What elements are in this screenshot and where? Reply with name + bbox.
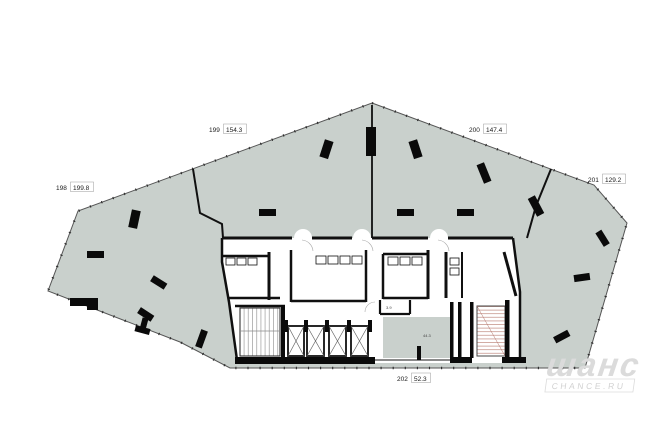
unit-201-area: 129.2 — [605, 177, 622, 184]
unit-label-199: 199 154.3 — [209, 124, 247, 134]
unit-198-area: 199.8 — [73, 185, 90, 192]
stair-wall — [505, 300, 510, 360]
unit-label-198: 198 199.8 — [56, 182, 94, 192]
watermark-site: CHANCE.RU — [551, 381, 626, 391]
core — [222, 229, 526, 364]
small-room-area: 44.3 — [423, 333, 432, 338]
unit-label-202: 202 52.3 — [397, 373, 431, 383]
column — [457, 209, 474, 216]
unit-199-area: 154.3 — [226, 127, 243, 134]
unit-label-200: 200 147.4 — [469, 124, 507, 134]
floor-plan-svg: 198 199.8 199 154.3 200 147.4 201 129.2 … — [0, 0, 670, 423]
column — [397, 209, 414, 216]
room-202-floor — [383, 317, 450, 358]
unit-label-201: 201 129.2 — [588, 174, 626, 184]
door-stub — [304, 320, 308, 332]
column — [366, 127, 376, 156]
unit-201-number: 201 — [588, 177, 599, 184]
unit-202-number: 202 — [397, 376, 408, 383]
small-room-area: 3.9 — [386, 305, 392, 310]
unit-200-number: 200 — [469, 127, 480, 134]
unit-198-number: 198 — [56, 185, 67, 192]
unit-202-area: 52.3 — [414, 376, 427, 383]
stairwell-left — [235, 305, 285, 358]
door-stub — [368, 320, 372, 332]
column — [87, 305, 98, 310]
watermark: шанс CHANCE.RU — [543, 347, 643, 392]
column — [259, 209, 276, 216]
column — [70, 298, 98, 306]
shaft-wall — [458, 302, 462, 358]
core-bottom-wall — [235, 357, 375, 364]
column — [87, 251, 104, 258]
shaft-wall — [450, 302, 454, 358]
door-stub — [284, 320, 288, 332]
watermark-brand: шанс — [544, 347, 643, 384]
wall-stub — [417, 346, 421, 360]
floor-plan-image: 198 199.8 199 154.3 200 147.4 201 129.2 … — [0, 0, 670, 423]
door-stub — [347, 320, 351, 332]
door-stub — [325, 320, 329, 332]
unit-200-area: 147.4 — [486, 127, 503, 134]
stair-flight — [240, 308, 280, 356]
unit-199-number: 199 — [209, 127, 220, 134]
stairwell-right — [450, 300, 510, 360]
stair-wall — [470, 302, 474, 358]
